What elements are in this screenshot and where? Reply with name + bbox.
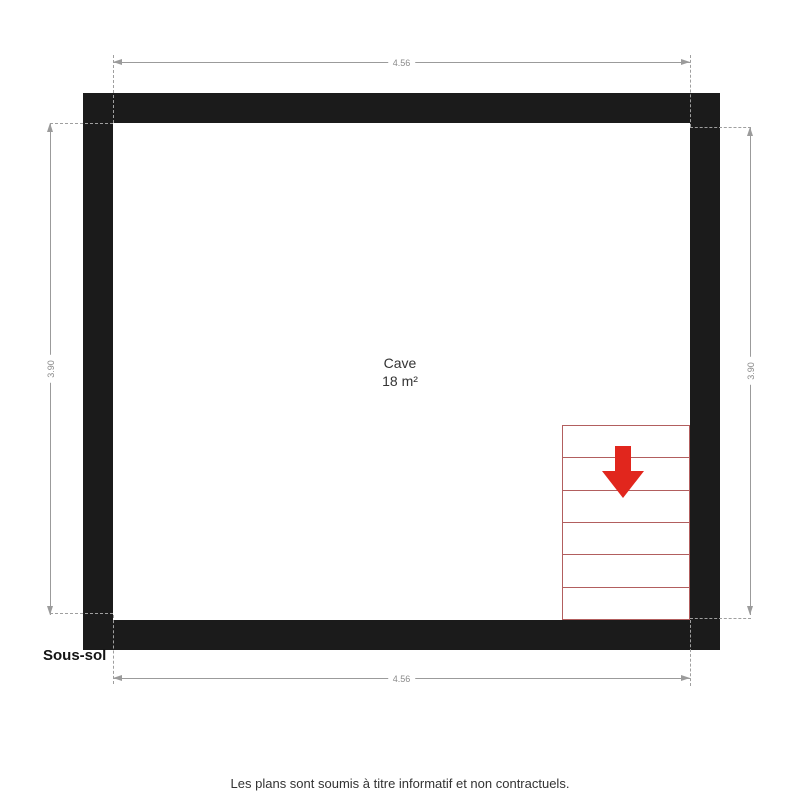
dimension-label-bottom: 4.56 <box>388 674 416 684</box>
extension-line-left-top <box>50 123 113 124</box>
room-area: 18 m² <box>382 373 418 391</box>
dimension-line-bottom: 4.56 <box>113 678 690 679</box>
extension-line-left-bottom <box>50 613 113 614</box>
stairs-down-arrow-icon <box>615 446 631 472</box>
extension-line-top-left <box>113 55 114 123</box>
stairs-down-arrow-icon <box>602 471 644 498</box>
dimension-line-left: 3.90 <box>50 123 51 615</box>
dimension-label-right: 3.90 <box>746 357 756 385</box>
stair-tread <box>563 523 689 555</box>
dimension-line-top: 4.56 <box>113 62 690 63</box>
disclaimer-text: Les plans sont soumis à titre informatif… <box>0 776 800 791</box>
extension-line-right-bottom <box>690 618 751 619</box>
stair-tread <box>563 555 689 587</box>
dimension-label-left: 3.90 <box>46 355 56 383</box>
extension-line-bottom-left <box>113 615 114 684</box>
extension-line-top-right <box>690 55 691 127</box>
extension-line-right-top <box>690 127 751 128</box>
dimension-label-top: 4.56 <box>388 58 416 68</box>
stair-tread <box>563 588 689 619</box>
floor-label: Sous-sol <box>43 647 106 664</box>
extension-line-bottom-right <box>690 620 691 686</box>
dimension-line-right: 3.90 <box>750 127 751 615</box>
room-name: Cave <box>382 355 418 373</box>
room-label: Cave 18 m² <box>382 355 418 390</box>
floorplan-canvas: 4.56 4.56 3.90 3.90 Cave 18 m² Sous-sol … <box>0 0 800 800</box>
